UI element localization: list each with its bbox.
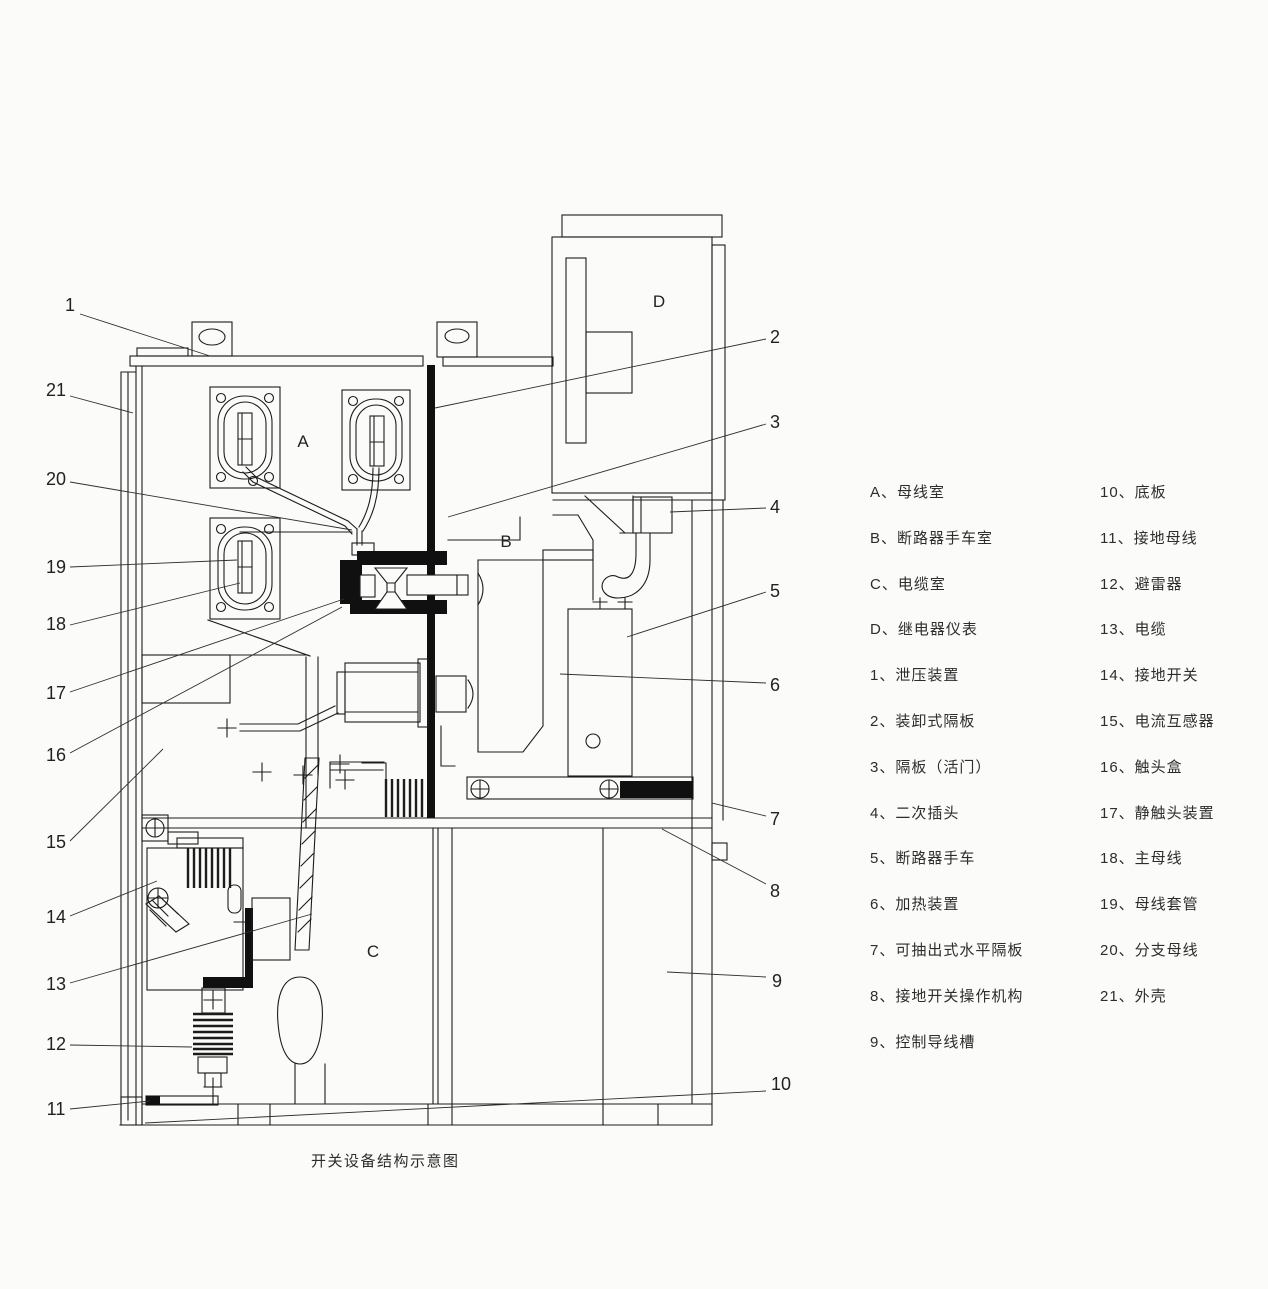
arrester-branch bbox=[193, 898, 290, 1104]
callout-label-20: 20 bbox=[46, 469, 66, 489]
cable-room-structure bbox=[147, 828, 603, 1104]
legend-column-right: 10、底板11、接地母线12、避雷器13、电缆14、接地开关15、电流互感器16… bbox=[1100, 470, 1268, 1020]
compartment-label-B: B bbox=[500, 532, 511, 551]
legend-item-left-5: 2、装卸式隔板 bbox=[870, 699, 1100, 745]
leader-line-3 bbox=[448, 424, 766, 517]
legend-item-left-10: 7、可抽出式水平隔板 bbox=[870, 928, 1100, 974]
callout-label-10: 10 bbox=[771, 1074, 791, 1094]
callout-label-19: 19 bbox=[46, 557, 66, 577]
legend-item-left-7: 4、二次插头 bbox=[870, 791, 1100, 837]
legend-item-right-8: 18、主母线 bbox=[1100, 836, 1268, 882]
callout-label-13: 13 bbox=[46, 974, 66, 994]
callout-label-17: 17 bbox=[46, 683, 66, 703]
callout-label-16: 16 bbox=[46, 745, 66, 765]
leader-line-12 bbox=[70, 1045, 192, 1047]
cable-and-termination bbox=[278, 758, 325, 1104]
compartment-label-C: C bbox=[367, 942, 379, 961]
handcart-hole-icon bbox=[586, 734, 600, 748]
callout-label-18: 18 bbox=[46, 614, 66, 634]
legend-item-right-11: 21、外壳 bbox=[1100, 974, 1268, 1020]
legend-item-right-7: 17、静触头装置 bbox=[1100, 791, 1268, 837]
legend-item-left-1: B、断路器手车室 bbox=[870, 516, 1100, 562]
ground-busbar bbox=[146, 1096, 160, 1105]
legend-item-left-9: 6、加热装置 bbox=[870, 882, 1100, 928]
compartment-label-A: A bbox=[297, 432, 309, 451]
callout-label-12: 12 bbox=[46, 1034, 66, 1054]
legend-item-left-11: 8、接地开关操作机构 bbox=[870, 974, 1100, 1020]
leader-line-4 bbox=[670, 508, 766, 512]
callout-label-8: 8 bbox=[770, 881, 780, 901]
callout-label-9: 9 bbox=[772, 971, 782, 991]
horizontal-partition bbox=[142, 815, 712, 844]
diagram-caption: 开关设备结构示意图 bbox=[311, 1150, 460, 1171]
current-transformer-left bbox=[188, 848, 252, 931]
busbar-room-floor bbox=[142, 620, 310, 703]
legend-item-left-3: D、继电器仪表 bbox=[870, 607, 1100, 653]
bolt-icon bbox=[471, 780, 618, 798]
leader-line-20 bbox=[70, 482, 352, 530]
legend-item-left-4: 1、泄压装置 bbox=[870, 653, 1100, 699]
leader-line-17 bbox=[70, 599, 344, 692]
legend-item-left-8: 5、断路器手车 bbox=[870, 836, 1100, 882]
legend-column-left: A、母线室B、断路器手车室C、电缆室D、继电器仪表1、泄压装置2、装卸式隔板3、… bbox=[870, 470, 1100, 1065]
callout-label-2: 2 bbox=[770, 327, 780, 347]
callout-label-21: 21 bbox=[46, 380, 66, 400]
grounding-switch bbox=[146, 888, 189, 932]
callout-label-6: 6 bbox=[770, 675, 780, 695]
legend-item-left-0: A、母线室 bbox=[870, 470, 1100, 516]
legend-item-right-0: 10、底板 bbox=[1100, 470, 1268, 516]
compartment-letters: ABCD bbox=[297, 292, 665, 961]
leader-line-6 bbox=[560, 674, 766, 683]
leader-line-13 bbox=[70, 914, 312, 983]
branch-busbars bbox=[240, 467, 379, 555]
leader-line-16 bbox=[70, 607, 342, 753]
leader-line-19 bbox=[70, 560, 237, 567]
static-contact-assembly bbox=[340, 551, 483, 614]
legend-item-left-12: 9、控制导线槽 bbox=[870, 1020, 1100, 1066]
top-plate-and-lugs bbox=[130, 322, 553, 366]
legend-item-right-3: 13、电缆 bbox=[1100, 607, 1268, 653]
legend-item-right-9: 19、母线套管 bbox=[1100, 882, 1268, 928]
leader-line-5 bbox=[627, 592, 766, 637]
leader-line-2 bbox=[435, 339, 766, 408]
callout-label-15: 15 bbox=[46, 832, 66, 852]
lug-hole-icon bbox=[199, 329, 225, 345]
leader-line-1 bbox=[80, 314, 210, 356]
bottom-plate bbox=[120, 1096, 712, 1125]
callout-label-7: 7 bbox=[770, 809, 780, 829]
compartment-label-D: D bbox=[653, 292, 665, 311]
secondary-plug bbox=[553, 496, 672, 600]
diagram-page: { "caption": "开关设备结构示意图", "compartment_l… bbox=[0, 0, 1268, 1289]
current-transformer-right bbox=[362, 763, 422, 817]
legend-item-right-2: 12、避雷器 bbox=[1100, 562, 1268, 608]
legend-item-right-6: 16、触头盒 bbox=[1100, 745, 1268, 791]
leader-line-14 bbox=[70, 881, 157, 916]
legend-item-left-6: 3、隔板（活门） bbox=[870, 745, 1100, 791]
right-wall-duct bbox=[692, 500, 727, 1104]
leader-line-7 bbox=[712, 803, 766, 816]
legend-item-left-2: C、电缆室 bbox=[870, 562, 1100, 608]
legend-item-right-4: 14、接地开关 bbox=[1100, 653, 1268, 699]
relay-instrument-box bbox=[552, 215, 725, 500]
legend-item-right-1: 11、接地母线 bbox=[1100, 516, 1268, 562]
leader-line-21 bbox=[70, 396, 133, 413]
legend-item-right-5: 15、电流互感器 bbox=[1100, 699, 1268, 745]
contact-box-insulator bbox=[337, 659, 473, 727]
callout-label-4: 4 bbox=[770, 497, 780, 517]
callout-label-11: 11 bbox=[47, 1099, 66, 1119]
leader-line-15 bbox=[70, 749, 163, 841]
leader-line-11 bbox=[70, 1101, 150, 1109]
callout-label-3: 3 bbox=[770, 412, 780, 432]
callout-label-14: 14 bbox=[46, 907, 66, 927]
callout-label-5: 5 bbox=[770, 581, 780, 601]
leader-line-8 bbox=[662, 829, 766, 884]
callout-label-1: 1 bbox=[65, 295, 75, 315]
leader-line-9 bbox=[667, 972, 766, 977]
lug-hole-icon bbox=[445, 329, 469, 343]
legend-item-right-10: 20、分支母线 bbox=[1100, 928, 1268, 974]
cabinet-shell bbox=[121, 366, 142, 1125]
